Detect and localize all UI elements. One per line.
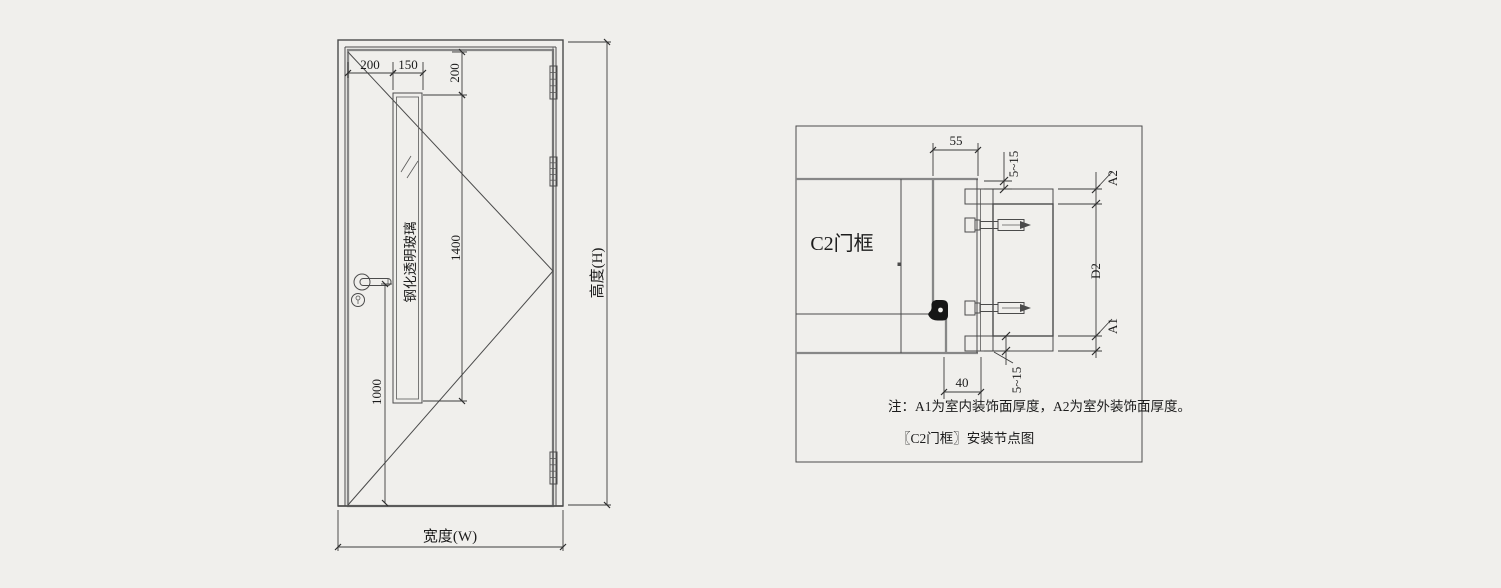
glass-reflection-mark (401, 156, 411, 172)
door-frame-outer (338, 40, 563, 506)
dim-handle-height: 1000 (369, 284, 392, 503)
dim-right-chain: A2 D2 A1 (1058, 170, 1120, 358)
dim-text: 5~15 (1006, 151, 1021, 178)
finish-strip-exterior (965, 189, 1053, 204)
glass-label: 钢化透明玻璃 (402, 222, 418, 303)
anchor-bolt-bottom (965, 301, 1031, 315)
dim-width: 宽度(W) (338, 510, 563, 551)
dim-gap-bottom: 5~15 (984, 332, 1024, 393)
dim-glass-width: 150 (393, 57, 423, 90)
handle-lever (360, 279, 391, 286)
dim-text: 200 (447, 63, 462, 83)
anchor-bolt-top (965, 218, 1031, 232)
glass-reflection-mark (407, 161, 418, 178)
seal-hole (938, 308, 943, 313)
dim-text: A1 (1105, 318, 1120, 334)
detail-note: 注：A1为室内装饰面厚度，A2为室外装饰面厚度。 (888, 398, 1191, 414)
cad-drawing: 钢化透明玻璃 (0, 0, 1501, 588)
dim-text: D2 (1088, 263, 1103, 279)
glass-panel: 钢化透明玻璃 (393, 93, 422, 403)
dim-text: 高度(H) (589, 248, 606, 299)
dim-height: 高度(H) (568, 42, 611, 505)
finish-strips (965, 189, 1053, 351)
frame-profile (796, 179, 981, 353)
dim-gap-top: 5~15 (984, 151, 1021, 193)
dim-text: 55 (950, 133, 963, 148)
dim-text: A2 (1105, 170, 1120, 186)
installation-detail: C2门框 (796, 126, 1191, 462)
dim-text: 宽度(W) (423, 528, 477, 545)
cad-canvas: 钢化透明玻璃 (0, 0, 1501, 588)
node-marker (898, 263, 902, 267)
dim-text: 200 (360, 57, 380, 72)
detail-title: 〖C2门框〗安装节点图 (897, 431, 1034, 446)
dim-text: 1400 (448, 235, 463, 261)
frame-label: C2门框 (810, 232, 873, 255)
dim-glass-height: 1400 (423, 95, 467, 401)
dim-left-offset: 200 (348, 57, 393, 90)
dim-text: 5~15 (1009, 367, 1024, 394)
door-elevation: 钢化透明玻璃 (338, 40, 611, 551)
dim-frame-depth: 55 (933, 133, 978, 176)
dim-text: 150 (398, 57, 418, 72)
dim-top-offset: 200 (423, 52, 467, 95)
dim-frame-back: 40 (944, 357, 981, 399)
keyhole-icon (356, 296, 360, 300)
dim-text: 1000 (369, 379, 384, 405)
handle-rose (354, 274, 370, 290)
dim-text: 40 (956, 375, 969, 390)
